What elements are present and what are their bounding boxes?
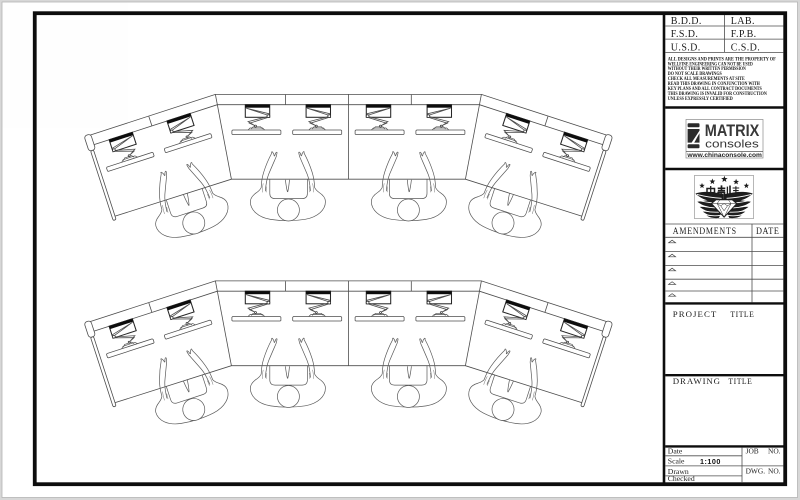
svg-text:PROJECT: PROJECT <box>673 309 718 319</box>
svg-text:NO.: NO. <box>768 467 781 476</box>
svg-text:DATE: DATE <box>756 226 780 236</box>
svg-text:Checked: Checked <box>668 474 695 483</box>
svg-text:Scale: Scale <box>668 457 685 466</box>
svg-text:www.chinaconsole.com: www.chinaconsole.com <box>686 152 762 159</box>
svg-text:F.P.B.: F.P.B. <box>731 29 757 40</box>
svg-text:consoles: consoles <box>705 139 759 151</box>
svg-text:U.S.D.: U.S.D. <box>671 42 701 53</box>
svg-text:TITLE: TITLE <box>730 309 754 319</box>
svg-text:UNLESS EXPRESSLY CERTIFIED: UNLESS EXPRESSLY CERTIFIED <box>668 97 733 102</box>
svg-text:F.S.D.: F.S.D. <box>671 29 698 40</box>
svg-text:B.D.D.: B.D.D. <box>671 16 702 27</box>
svg-text:C.S.D.: C.S.D. <box>731 42 760 53</box>
svg-text:JOB: JOB <box>746 446 759 455</box>
svg-text:NO.: NO. <box>768 446 781 455</box>
svg-text:Date: Date <box>668 447 683 456</box>
svg-text:1:100: 1:100 <box>700 457 721 466</box>
svg-text:DWG.: DWG. <box>746 467 766 476</box>
svg-text:TITLE: TITLE <box>728 376 752 386</box>
svg-text:AMENDMENTS: AMENDMENTS <box>673 226 737 236</box>
svg-text:LAB.: LAB. <box>731 16 755 27</box>
svg-text:DRAWING: DRAWING <box>673 376 721 386</box>
svg-text:MATRIX: MATRIX <box>705 122 760 140</box>
